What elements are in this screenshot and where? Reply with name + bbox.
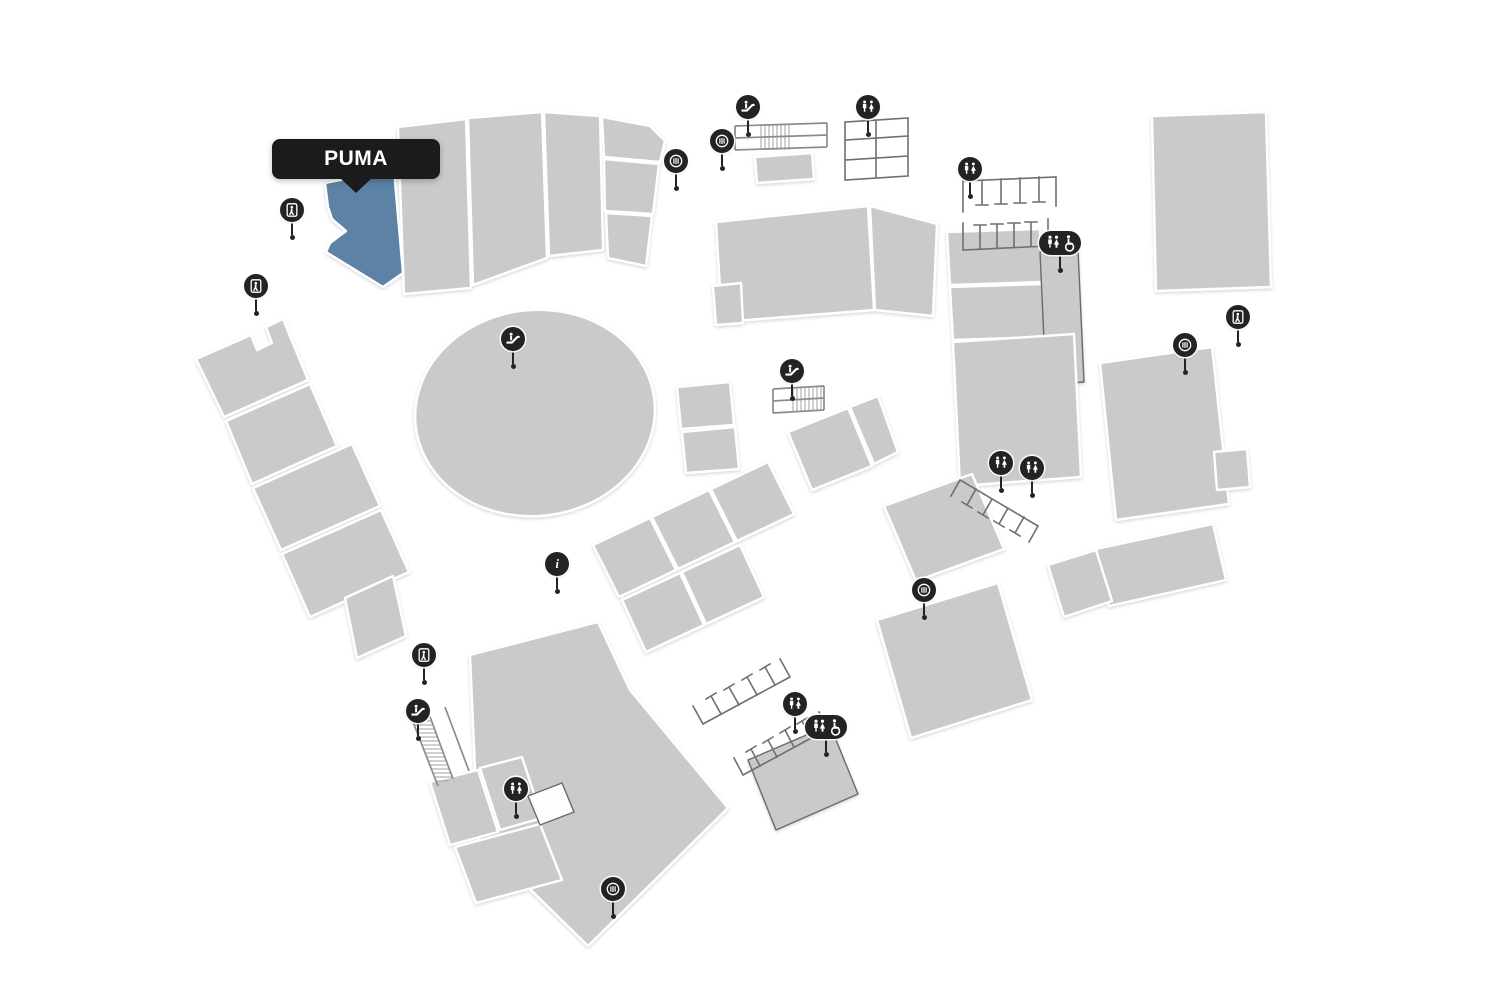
marker-restroom[interactable] [989, 451, 1013, 475]
restroom-icon [783, 692, 807, 716]
marker-accessible-restroom[interactable] [805, 715, 847, 739]
restroom-icon [1020, 456, 1044, 480]
pin-anchor-dot [720, 166, 725, 171]
marker-restroom[interactable] [783, 692, 807, 716]
marker-exit[interactable] [244, 274, 268, 298]
marker-info[interactable]: i [545, 552, 569, 576]
atm-icon [1173, 333, 1197, 357]
marker-layer: i [0, 0, 1500, 1000]
marker-exit[interactable] [1226, 305, 1250, 329]
restroom-icon [856, 95, 880, 119]
pin-anchor-dot [416, 736, 421, 741]
marker-atm[interactable] [912, 578, 936, 602]
marker-accessible-restroom[interactable] [1039, 231, 1081, 255]
exit-icon [1226, 305, 1250, 329]
pin-anchor-dot [422, 680, 427, 685]
escalator-icon [501, 327, 525, 351]
pin-anchor-dot [746, 132, 751, 137]
exit-icon [280, 198, 304, 222]
escalator-icon [736, 95, 760, 119]
pin-anchor-dot [511, 364, 516, 369]
marker-exit[interactable] [280, 198, 304, 222]
pin-anchor-dot [254, 311, 259, 316]
atm-icon [912, 578, 936, 602]
pin-anchor-dot [674, 186, 679, 191]
pin-anchor-dot [290, 235, 295, 240]
marker-escalator[interactable] [780, 359, 804, 383]
escalator-icon [780, 359, 804, 383]
marker-escalator[interactable] [406, 699, 430, 723]
restroom-icon [504, 777, 528, 801]
info-icon: i [545, 552, 569, 576]
pin-anchor-dot [922, 615, 927, 620]
marker-atm[interactable] [664, 149, 688, 173]
pin-anchor-dot [1030, 493, 1035, 498]
restroom-icon [989, 451, 1013, 475]
exit-icon [244, 274, 268, 298]
marker-atm[interactable] [710, 129, 734, 153]
marker-escalator[interactable] [501, 327, 525, 351]
marker-restroom[interactable] [1020, 456, 1044, 480]
marker-atm[interactable] [1173, 333, 1197, 357]
pin-anchor-dot [514, 814, 519, 819]
store-tooltip-label: PUMA [324, 147, 388, 171]
pin-anchor-dot [793, 729, 798, 734]
pin-anchor-dot [1236, 342, 1241, 347]
atm-icon [601, 877, 625, 901]
pin-anchor-dot [866, 132, 871, 137]
marker-restroom[interactable] [958, 157, 982, 181]
restroom-icon [958, 157, 982, 181]
marker-exit[interactable] [412, 643, 436, 667]
store-tooltip[interactable]: PUMA [272, 139, 440, 179]
pin-anchor-dot [555, 589, 560, 594]
pin-anchor-dot [968, 194, 973, 199]
marker-restroom[interactable] [504, 777, 528, 801]
pin-anchor-dot [999, 488, 1004, 493]
pin-anchor-dot [611, 914, 616, 919]
pin-anchor-dot [824, 752, 829, 757]
marker-escalator[interactable] [736, 95, 760, 119]
tooltip-pointer-arrow [339, 177, 373, 193]
pin-anchor-dot [1183, 370, 1188, 375]
marker-atm[interactable] [601, 877, 625, 901]
marker-restroom[interactable] [856, 95, 880, 119]
escalator-icon [406, 699, 430, 723]
svg-text:i: i [556, 557, 560, 571]
atm-icon [664, 149, 688, 173]
pin-anchor-dot [790, 396, 795, 401]
exit-icon [412, 643, 436, 667]
accessible-restroom-icon [805, 715, 847, 739]
atm-icon [710, 129, 734, 153]
pin-anchor-dot [1058, 268, 1063, 273]
accessible-restroom-icon [1039, 231, 1081, 255]
mall-floor-map[interactable]: i [0, 0, 1500, 1000]
